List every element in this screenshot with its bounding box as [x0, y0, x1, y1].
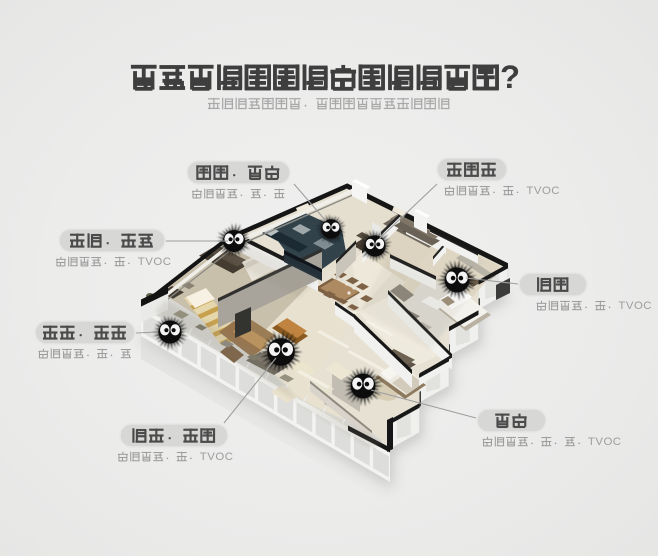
svg-text:TVOC: TVOC: [588, 436, 622, 448]
svg-text:?: ?: [500, 58, 520, 95]
svg-text:TVOC: TVOC: [200, 451, 234, 463]
svg-text:TVOC: TVOC: [618, 300, 652, 312]
svg-text:TVOC: TVOC: [138, 256, 172, 268]
svg-text:TVOC: TVOC: [526, 185, 560, 197]
